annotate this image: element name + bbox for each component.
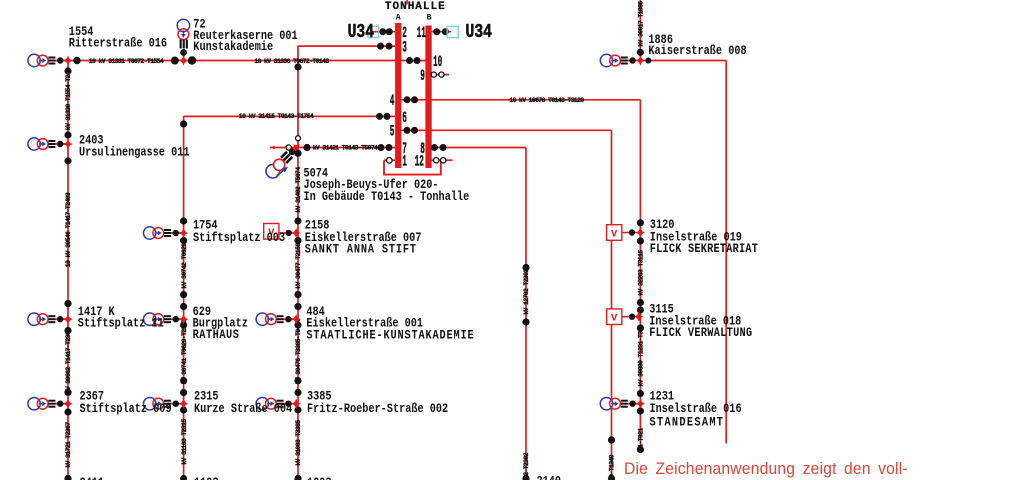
svg-text:Stiftsplatz 11: Stiftsplatz 11 [78, 315, 164, 331]
svg-text:9: 9 [420, 67, 425, 85]
svg-text:FLICK SEKRETARIAT: FLICK SEKRETARIAT [650, 241, 758, 257]
svg-text:Ursulinengasse 011: Ursulinengasse 011 [79, 144, 190, 160]
svg-text:3: 3 [402, 39, 407, 57]
svg-text:10: 10 [433, 53, 442, 71]
svg-text:1003: 1003 [307, 475, 332, 480]
svg-text:kV 30880 T1231-T3: kV 30880 T1231-T3 [638, 331, 645, 387]
svg-text:In Gebäude T0143 - Tonhalle: In Gebäude T0143 - Tonhalle [304, 189, 470, 205]
svg-text:Die Zeichenanwendung zeigt den: Die Zeichenanwendung zeigt den voll- [624, 460, 908, 478]
svg-text:Kaiserstraße 008: Kaiserstraße 008 [648, 43, 746, 59]
svg-text:STANDESAMT: STANDESAMT [650, 414, 725, 430]
svg-text:B: B [427, 13, 432, 23]
svg-text:kV 30742 T0629: kV 30742 T0629 [181, 243, 188, 289]
svg-text:Kunstakademie: Kunstakademie [193, 39, 273, 55]
svg-text:kV 30476 T3385-T0484: kV 30476 T3385-T0484 [295, 319, 302, 384]
svg-text:kV 31330 T1554-T24: kV 31330 T1554-T24 [65, 71, 72, 130]
svg-text:10 kV 31336 T0672-T0143: 10 kV 31336 T0672-T0143 [254, 58, 329, 65]
svg-text:2140: 2140 [537, 473, 562, 480]
svg-text:kV 30477 T2158: kV 30477 T2158 [295, 243, 302, 289]
svg-text:kV 32263 T3115: kV 32263 T3115 [638, 250, 645, 296]
svg-text:STAATLICHE-KUNSTAKADEMIE: STAATLICHE-KUNSTAKADEMIE [306, 327, 474, 343]
svg-text:Ritterstraße 016: Ritterstraße 016 [69, 35, 167, 51]
svg-text:RATHAUS: RATHAUS [193, 327, 240, 343]
svg-text:FLICK VERWALTUNG: FLICK VERWALTUNG [649, 325, 752, 341]
svg-text:11: 11 [417, 24, 426, 42]
svg-text:kV 31103 T2315: kV 31103 T2315 [181, 419, 188, 465]
svg-text:Stiftsplatz 009: Stiftsplatz 009 [80, 401, 172, 417]
svg-text:U34: U34 [348, 22, 374, 43]
svg-text:kV 30017 T1886: kV 30017 T1886 [638, 1, 645, 47]
svg-text:TONHALLE: TONHALLE [385, 1, 446, 13]
svg-text:10 kV 10670 T0143-T3120: 10 kV 10670 T0143-T3120 [509, 97, 584, 104]
svg-text:Stiftsplatz 003: Stiftsplatz 003 [193, 230, 285, 246]
svg-text:kV 31402 T5074: kV 31402 T5074 [295, 167, 302, 213]
svg-text:kV 30741 T0629-T2315: kV 30741 T0629-T2315 [181, 319, 188, 384]
svg-text:V: V [611, 313, 618, 325]
svg-text:10 kV 30546 T1417-T2403: 10 kV 30546 T1417-T2403 [65, 192, 72, 267]
svg-text:Fritz-Roeber-Straße 002: Fritz-Roeber-Straße 002 [307, 401, 448, 417]
svg-text:SANKT ANNA STIFT: SANKT ANNA STIFT [305, 241, 417, 257]
svg-text:2411: 2411 [80, 475, 105, 480]
svg-text:kV 31421 T0143-T5074: kV 31421 T0143-T5074 [313, 145, 378, 152]
svg-text:1-T021: 1-T021 [638, 428, 645, 448]
svg-text:A: A [396, 13, 402, 23]
svg-text:kV 12702 T2302: kV 12702 T2302 [523, 269, 530, 315]
svg-text:5: 5 [390, 123, 395, 141]
svg-text:V: V [611, 228, 618, 240]
svg-text:10 kV 31415 T0143-T1754: 10 kV 31415 T0143-T1754 [239, 113, 314, 120]
svg-text:4: 4 [390, 93, 395, 111]
svg-text:kV 31721 T2367: kV 31721 T2367 [65, 422, 72, 468]
svg-text:12: 12 [415, 153, 424, 171]
svg-text:10 kV 31331 T0672-T1554: 10 kV 31331 T0672-T1554 [89, 58, 164, 65]
svg-text:kV 30662 T1417-T2367: kV 30662 T1417-T2367 [65, 328, 72, 393]
svg-text:Kurze Straße 004: Kurze Straße 004 [194, 401, 292, 417]
svg-text:1103: 1103 [194, 475, 219, 480]
svg-text:6: 6 [402, 109, 407, 127]
svg-text:1: 1 [402, 153, 407, 171]
svg-text:kV 31003 T3385: kV 31003 T3385 [295, 420, 302, 466]
svg-text:02-T2302: 02-T2302 [523, 452, 530, 479]
svg-text:U34: U34 [465, 22, 491, 43]
